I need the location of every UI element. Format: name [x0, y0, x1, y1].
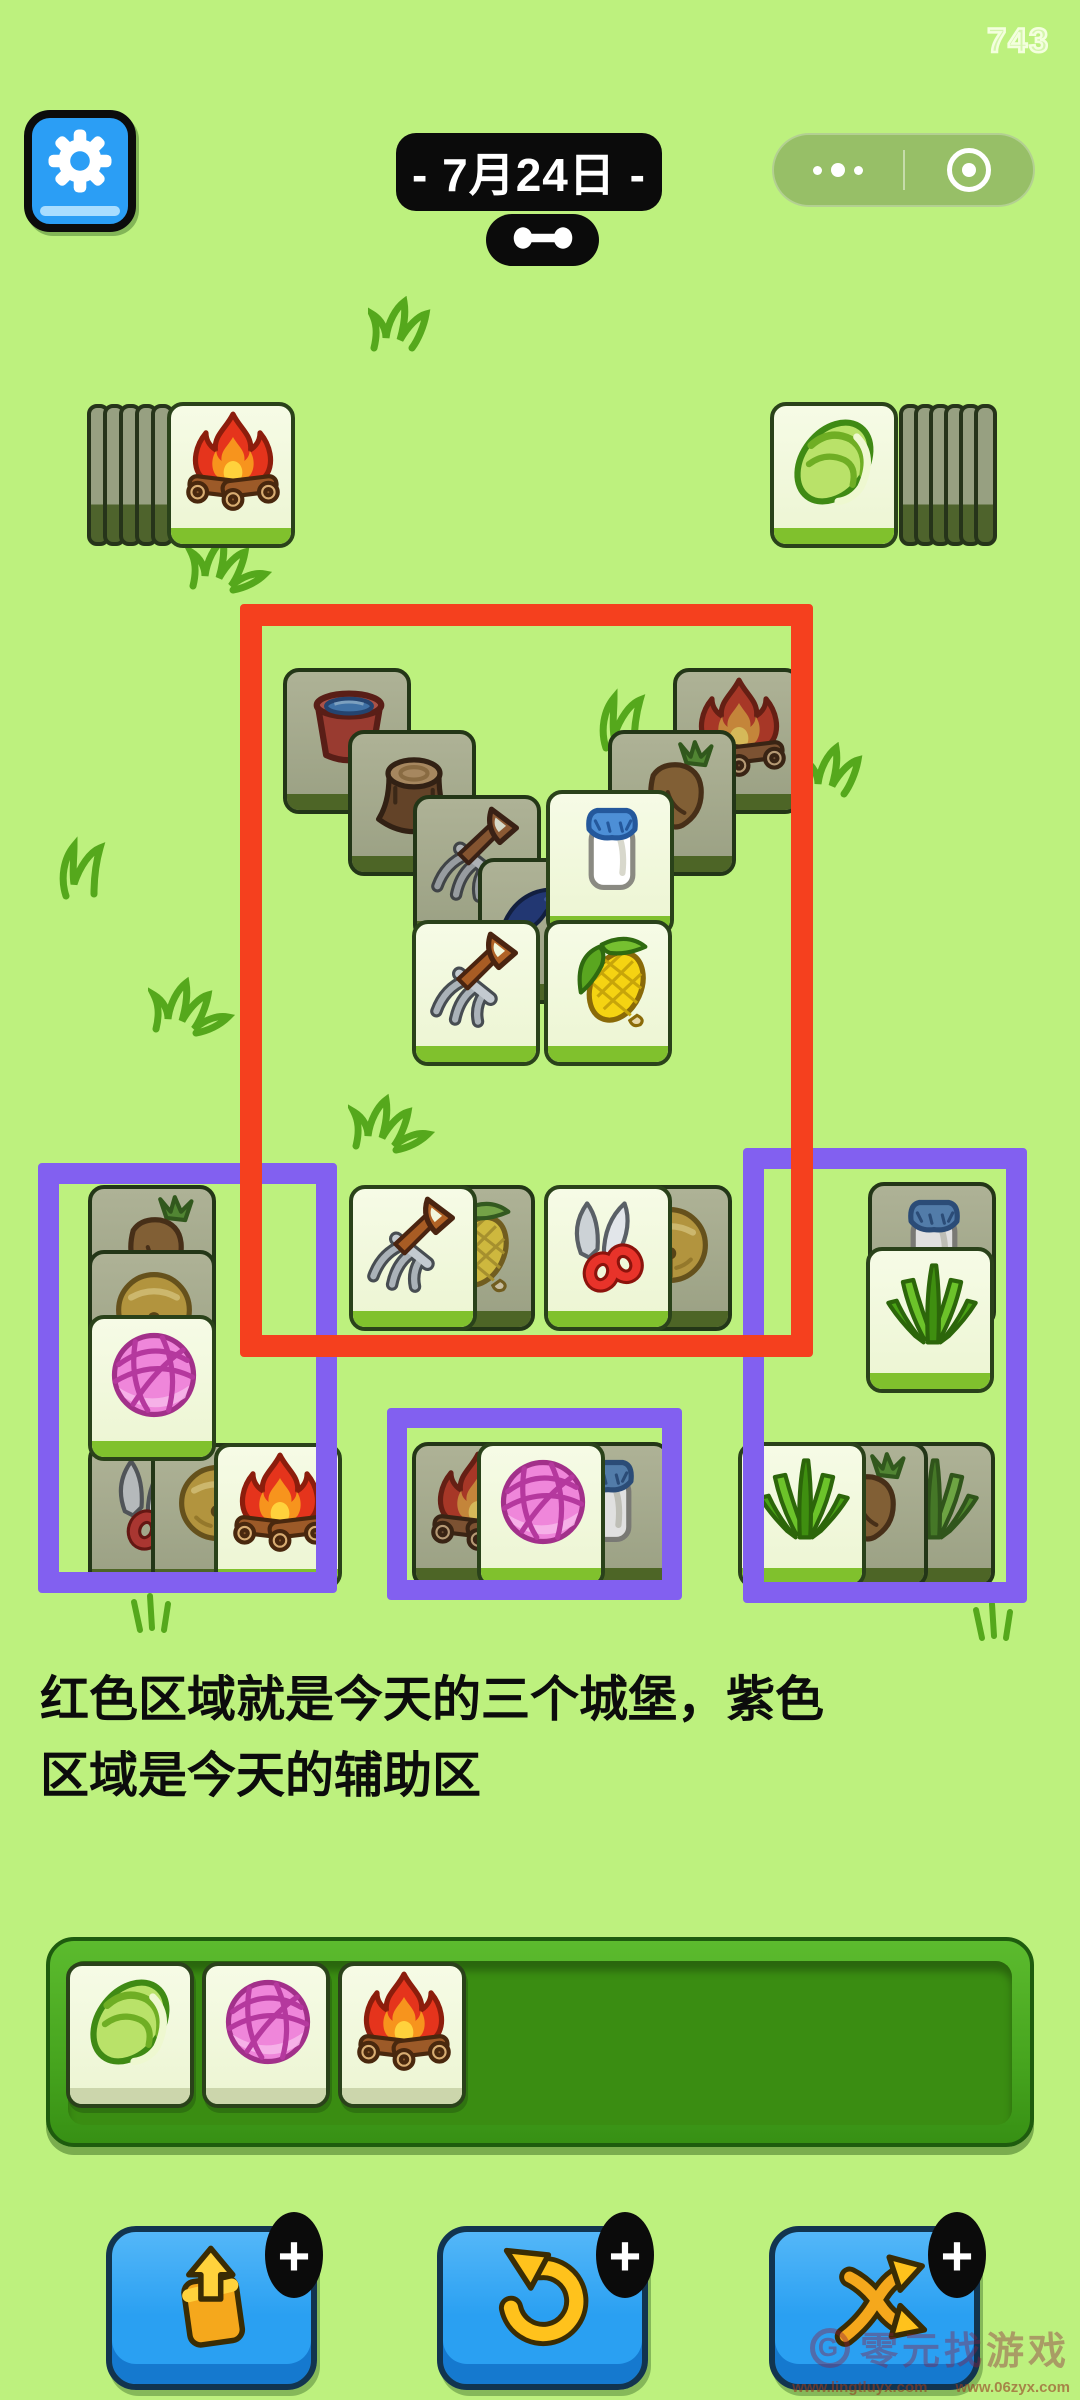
hint-text: 红色区域就是今天的三个城堡，紫色 区域是今天的辅助区: [40, 1662, 1050, 1814]
date-banner: - 7月24日 -: [396, 133, 662, 211]
date-label: - 7月24日 -: [412, 139, 646, 205]
level-counter: 743: [987, 22, 1050, 61]
hint-line-2: 区域是今天的辅助区: [40, 1738, 1050, 1814]
extract-button[interactable]: +: [106, 2226, 317, 2390]
right-stack[interactable]: [770, 402, 898, 548]
plus-badge[interactable]: +: [265, 2212, 323, 2298]
game-screen: 743 - 7月24日 - 红色区域就是今天的三个城堡，紫色 区域是今天的辅助区…: [0, 0, 1080, 2400]
plus-badge[interactable]: +: [928, 2212, 986, 2298]
tile-base-strip: [206, 2088, 326, 2104]
squiggle-grass-decoration: [800, 742, 900, 806]
cabbage-icon: [784, 410, 888, 514]
tray-tile-cabbage: [66, 1962, 194, 2108]
watermark-url-2: www.06zyx.com: [956, 2379, 1071, 2396]
sprout-grass-decoration: [130, 1590, 176, 1634]
tray-tile-campfire: [338, 1962, 466, 2108]
tray-tile-yarn: [202, 1962, 330, 2108]
gear-icon: [45, 126, 115, 196]
tile-base-strip: [70, 2088, 190, 2104]
watermark: G 零元找游戏 www.lingtluyx.com www.06zyx.com: [792, 2320, 1070, 2396]
helper-zone-middle: [387, 1408, 682, 1600]
more-button[interactable]: [774, 135, 903, 205]
tuft-grass-decoration: [148, 975, 252, 1039]
castle-zone: [240, 604, 813, 1357]
campfire-icon: [181, 410, 285, 514]
undo-icon: [489, 2244, 599, 2354]
watermark-urls: www.lingtluyx.com www.06zyx.com: [792, 2379, 1070, 2396]
undo-button[interactable]: +: [437, 2226, 648, 2390]
stack-edge: [974, 404, 997, 546]
tile-base-strip: [774, 528, 894, 544]
sprout-grass-decoration: [972, 1598, 1018, 1642]
squiggle-grass-decoration: [368, 296, 468, 360]
tile-base-strip: [342, 2088, 462, 2104]
tile-base-strip: [171, 528, 291, 544]
popout-icon: [158, 2244, 268, 2354]
more-dots-icon: [813, 163, 863, 177]
hint-line-1: 红色区域就是今天的三个城堡，紫色: [40, 1662, 1050, 1738]
target-icon: [947, 148, 991, 192]
watermark-brand: G 零元找游戏: [792, 2320, 1070, 2375]
dumbbell-icon: [507, 223, 579, 258]
cabbage-icon: [80, 1970, 184, 2074]
plus-badge[interactable]: +: [596, 2212, 654, 2298]
settings-button[interactable]: [24, 110, 136, 232]
watermark-url-1: www.lingtluyx.com: [792, 2379, 927, 2396]
yarn-icon: [216, 1970, 320, 2074]
watermark-brand-text: 零元找游戏: [860, 2320, 1070, 2375]
wechat-capsule: [772, 133, 1035, 207]
watermark-logo-icon: G: [810, 2328, 850, 2368]
tile-tray: [46, 1937, 1034, 2147]
curl-grass-decoration: [56, 836, 118, 902]
campfire-icon: [352, 1970, 456, 2074]
left-stack[interactable]: [167, 402, 295, 548]
drag-handle: [486, 214, 599, 266]
exit-button[interactable]: [905, 135, 1034, 205]
button-shine: [40, 206, 120, 216]
